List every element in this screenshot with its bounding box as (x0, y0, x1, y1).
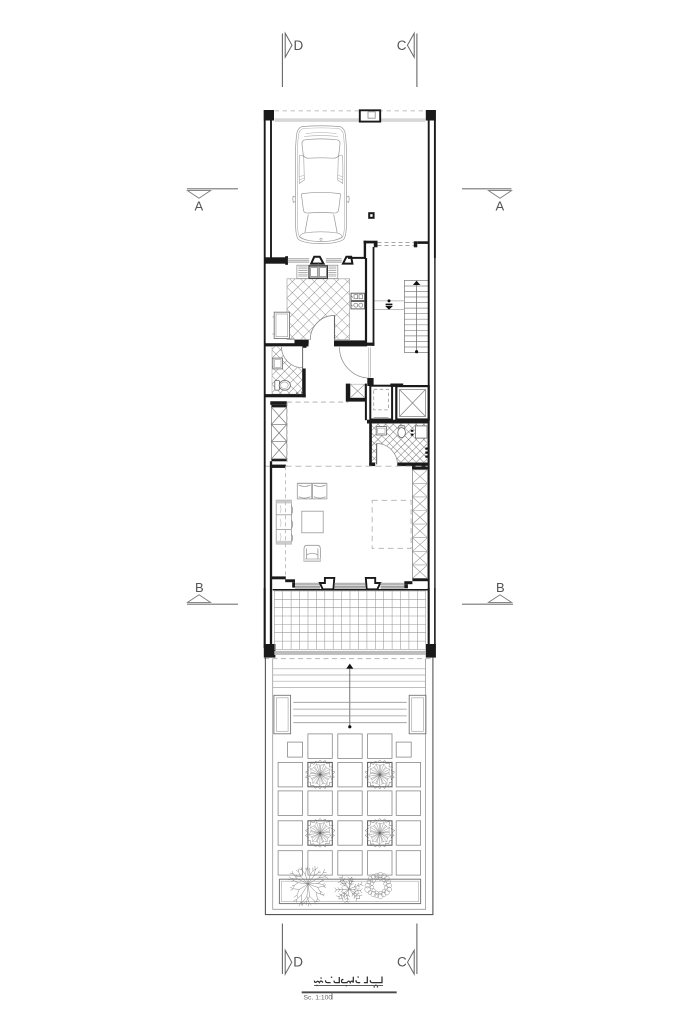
svg-text:Sc. 1:100: Sc. 1:100 (304, 994, 333, 1001)
svg-text:B: B (195, 580, 204, 595)
svg-text:B: B (496, 580, 505, 595)
svg-text:C: C (397, 38, 407, 53)
svg-text:A: A (496, 199, 505, 214)
svg-text:D: D (294, 38, 304, 53)
svg-text:D: D (293, 955, 303, 970)
svg-text:C: C (397, 955, 407, 970)
svg-text:A: A (195, 199, 204, 214)
